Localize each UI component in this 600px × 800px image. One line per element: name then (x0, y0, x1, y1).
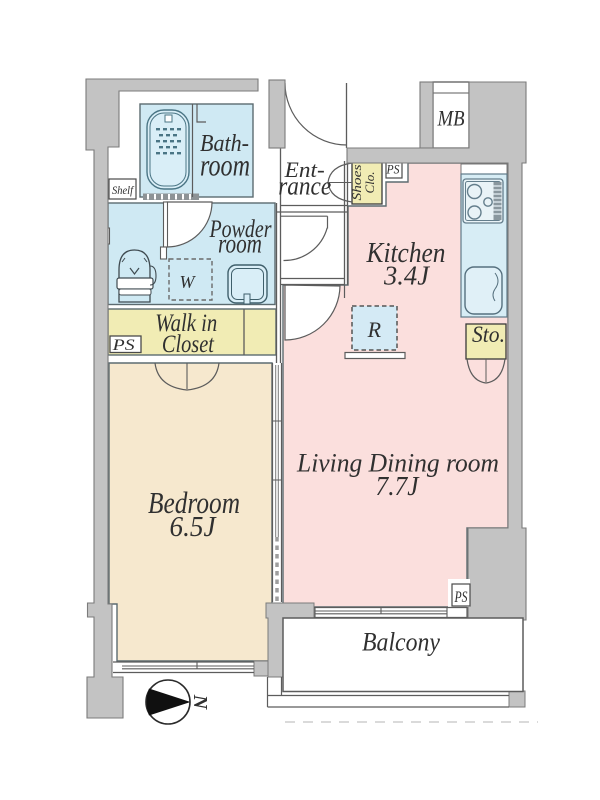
svg-text:room: room (200, 148, 250, 183)
svg-text:Balcony: Balcony (362, 628, 440, 657)
svg-text:MB: MB (437, 106, 465, 131)
svg-text:3.4J: 3.4J (383, 261, 431, 291)
svg-text:Sto.: Sto. (472, 322, 505, 347)
svg-text:W: W (180, 272, 197, 292)
svg-text:PS: PS (386, 162, 400, 177)
svg-text:N: N (189, 694, 211, 711)
svg-text:6.5J: 6.5J (170, 511, 217, 543)
svg-text:7.7J: 7.7J (376, 471, 421, 501)
svg-text:room: room (218, 229, 262, 259)
svg-text:PS: PS (454, 589, 468, 606)
svg-text:R: R (367, 317, 382, 342)
svg-text:Shelf: Shelf (112, 185, 135, 197)
svg-text:rance: rance (278, 172, 331, 201)
svg-text:PS: PS (111, 337, 134, 354)
svg-text:Closet: Closet (162, 331, 215, 358)
